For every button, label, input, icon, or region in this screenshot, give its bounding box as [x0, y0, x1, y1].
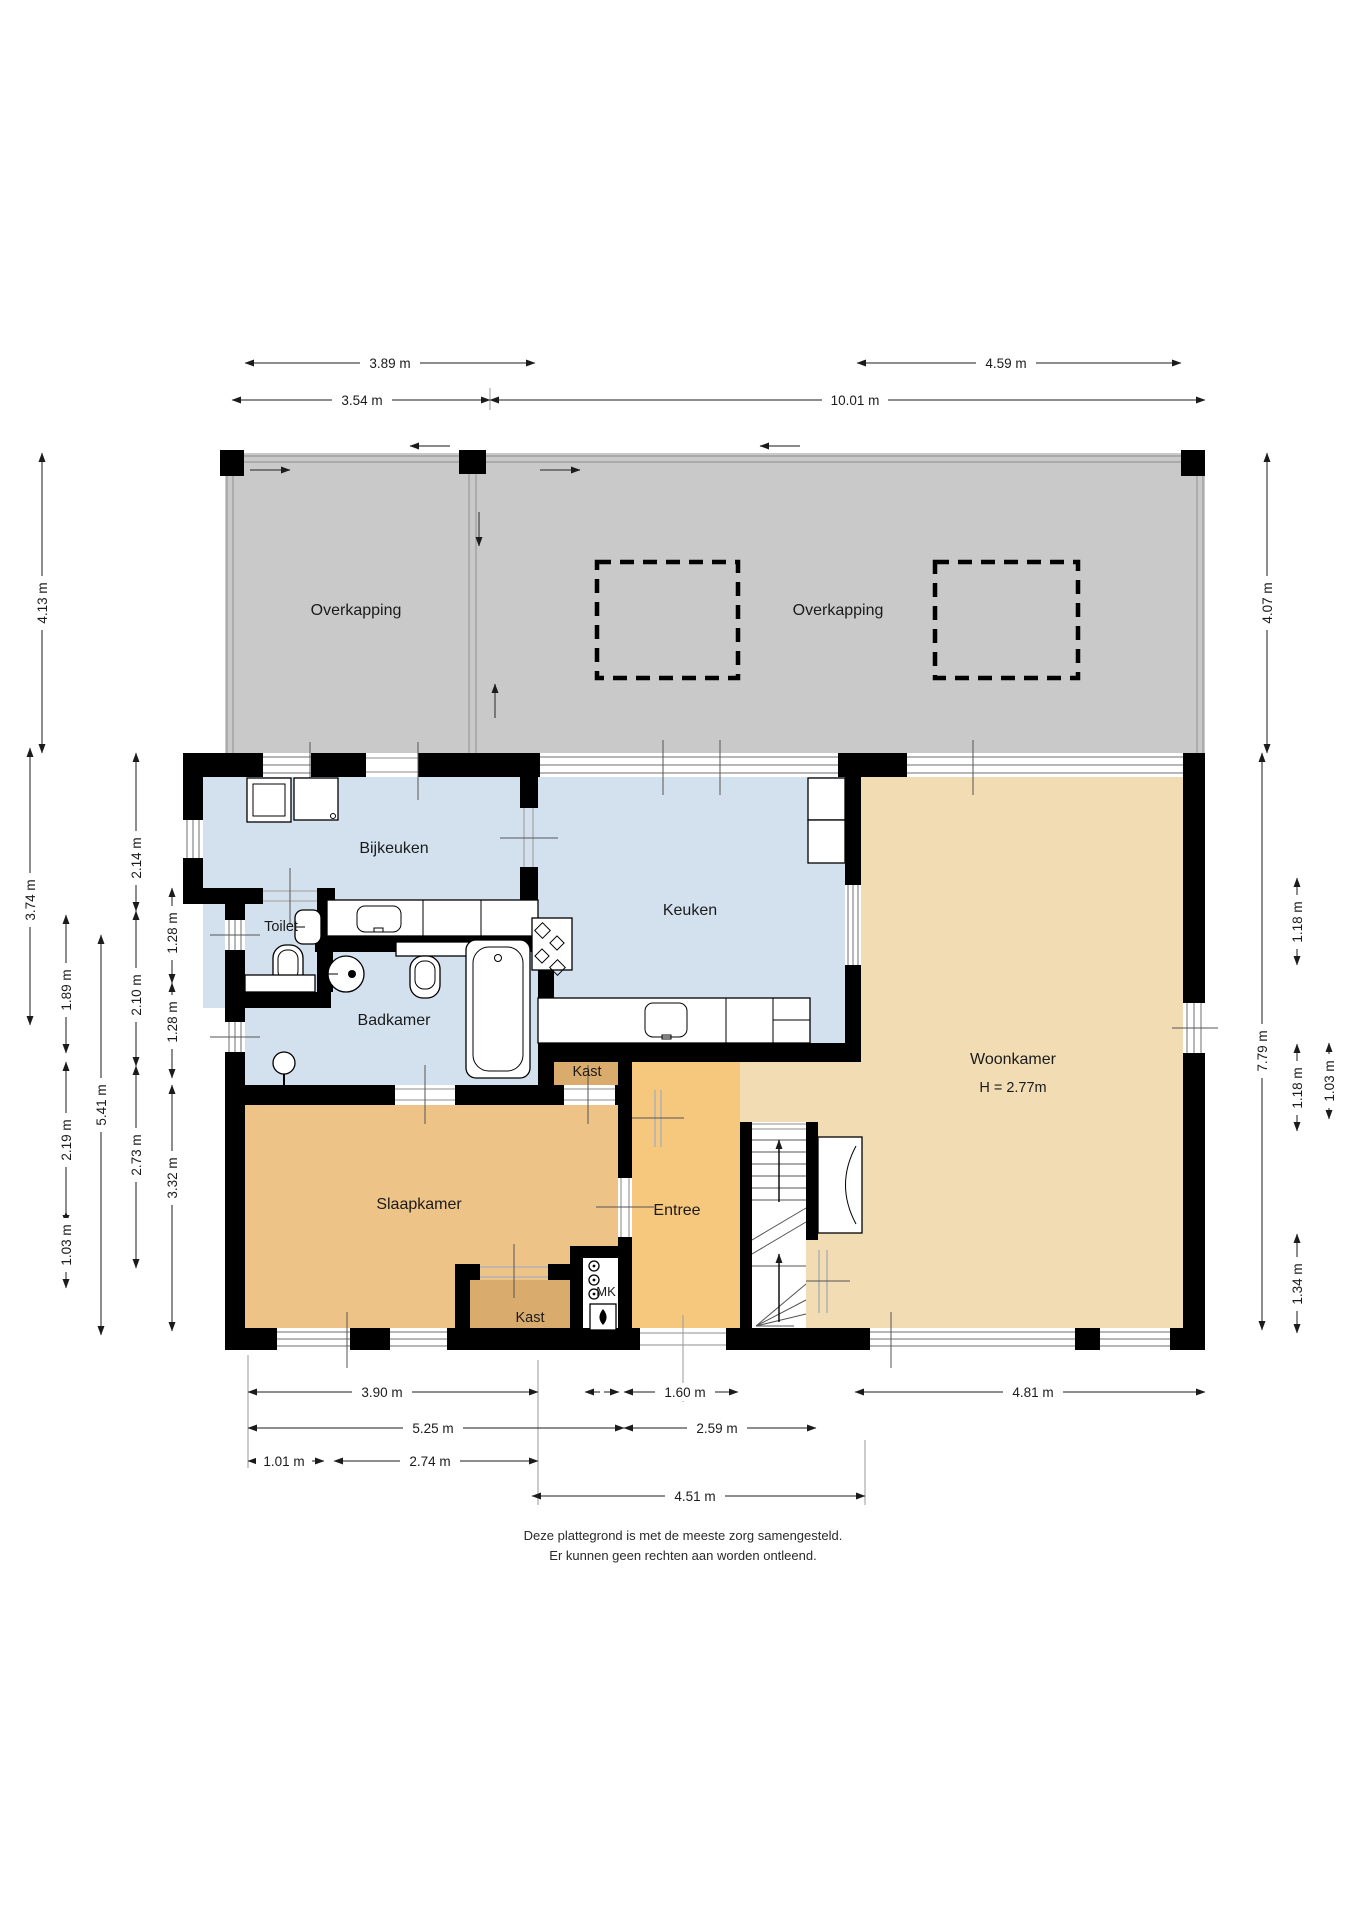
dim-top-354: 3.54 m	[341, 393, 382, 408]
room-label-woonkamer: Woonkamer	[970, 1051, 1057, 1068]
hand-basin-icon	[295, 910, 321, 944]
room-label-entree: Entree	[653, 1202, 700, 1219]
dim-top-459: 4.59 m	[985, 356, 1026, 371]
keuken-counter	[538, 998, 810, 1043]
bathtub-icon	[466, 940, 530, 1078]
dim-left-413: 4.13 m	[35, 582, 50, 623]
window-bottom-4	[1100, 1328, 1170, 1350]
disclaimer-line-2: Er kunnen geen rechten aan worden ontlee…	[549, 1548, 816, 1563]
dim-left-128a: 1.28 m	[165, 912, 180, 953]
window-top-woonkamer	[907, 753, 1183, 777]
dim-bottom-525: 5.25 m	[412, 1421, 453, 1436]
floor-plan-canvas: Overkapping Overkapping Bijkeuken Toilet…	[0, 0, 1358, 1920]
interior-window-keuken-woonkamer	[845, 885, 861, 965]
room-label-kast-boven: Kast	[572, 1064, 601, 1080]
toilet-shelf	[245, 975, 315, 992]
room-label-overkapping-right: Overkapping	[793, 602, 884, 619]
dim-left-273: 2.73 m	[129, 1134, 144, 1175]
dryer-icon	[294, 778, 338, 820]
dim-left-210: 2.10 m	[129, 974, 144, 1015]
disclaimer: Deze plattegrond is met de meeste zorg s…	[524, 1528, 843, 1563]
boiler-icon	[590, 1304, 616, 1330]
dim-bottom-101: 1.01 m	[263, 1454, 304, 1469]
dim-bottom-274: 2.74 m	[409, 1454, 450, 1469]
dim-bottom-259: 2.59 m	[696, 1421, 737, 1436]
dim-left-374: 3.74 m	[23, 879, 38, 920]
post-middle	[459, 450, 486, 474]
dim-right-118a: 1.18 m	[1290, 901, 1305, 942]
dim-bottom-481: 4.81 m	[1012, 1385, 1053, 1400]
dim-right-118b: 1.18 m	[1290, 1067, 1305, 1108]
dim-right-407: 4.07 m	[1260, 582, 1275, 623]
room-label-mk: MK	[596, 1284, 616, 1299]
dim-left-219: 2.19 m	[59, 1119, 74, 1160]
badkamer-counter	[327, 900, 538, 936]
dim-left-332: 3.32 m	[165, 1157, 180, 1198]
disclaimer-line-1: Deze plattegrond is met de meeste zorg s…	[524, 1528, 843, 1543]
dim-bottom-390: 3.90 m	[361, 1385, 402, 1400]
dim-left-189: 1.89 m	[59, 969, 74, 1010]
dim-right-134: 1.34 m	[1290, 1263, 1305, 1304]
room-label-bijkeuken: Bijkeuken	[359, 840, 428, 857]
dim-left-214: 2.14 m	[129, 837, 144, 878]
post-right	[1181, 450, 1205, 476]
washer-icon	[247, 778, 291, 822]
door-top-bijkeuken	[366, 753, 418, 777]
dim-right-103: 1.03 m	[1322, 1060, 1337, 1101]
dim-top-1001: 10.01 m	[831, 393, 880, 408]
shower-icon	[328, 956, 364, 992]
entree-floor	[632, 1062, 740, 1328]
room-height-note: H = 2.77m	[979, 1080, 1046, 1096]
room-label-kast-onder: Kast	[515, 1310, 544, 1326]
window-top-1	[263, 753, 311, 777]
room-label-badkamer: Badkamer	[358, 1012, 432, 1029]
window-top-keuken	[540, 753, 838, 777]
staircase	[752, 1122, 806, 1328]
room-label-slaapkamer: Slaapkamer	[376, 1196, 462, 1213]
room-label-overkapping-left: Overkapping	[311, 602, 402, 619]
post-left	[220, 450, 244, 476]
window-bottom-1	[277, 1328, 350, 1350]
dim-left-541: 5.41 m	[94, 1084, 109, 1125]
dim-left-103: 1.03 m	[59, 1224, 74, 1265]
dim-top-389: 3.89 m	[369, 356, 410, 371]
window-left-upper	[183, 820, 203, 858]
floor-plan-page: Overkapping Overkapping Bijkeuken Toilet…	[0, 0, 1358, 1920]
dim-left-128b: 1.28 m	[165, 1001, 180, 1042]
keuken-cabinets	[808, 778, 845, 863]
sideboard-icon	[818, 1137, 862, 1233]
dim-bottom-451: 4.51 m	[674, 1489, 715, 1504]
window-bottom-3	[870, 1328, 1075, 1350]
window-bottom-2	[390, 1328, 447, 1350]
room-label-keuken: Keuken	[663, 902, 717, 919]
dim-right-779: 7.79 m	[1255, 1030, 1270, 1071]
dim-bottom-160: 1.60 m	[664, 1385, 705, 1400]
room-label-toilet: Toilet	[264, 919, 298, 935]
hob-icon	[532, 918, 572, 975]
